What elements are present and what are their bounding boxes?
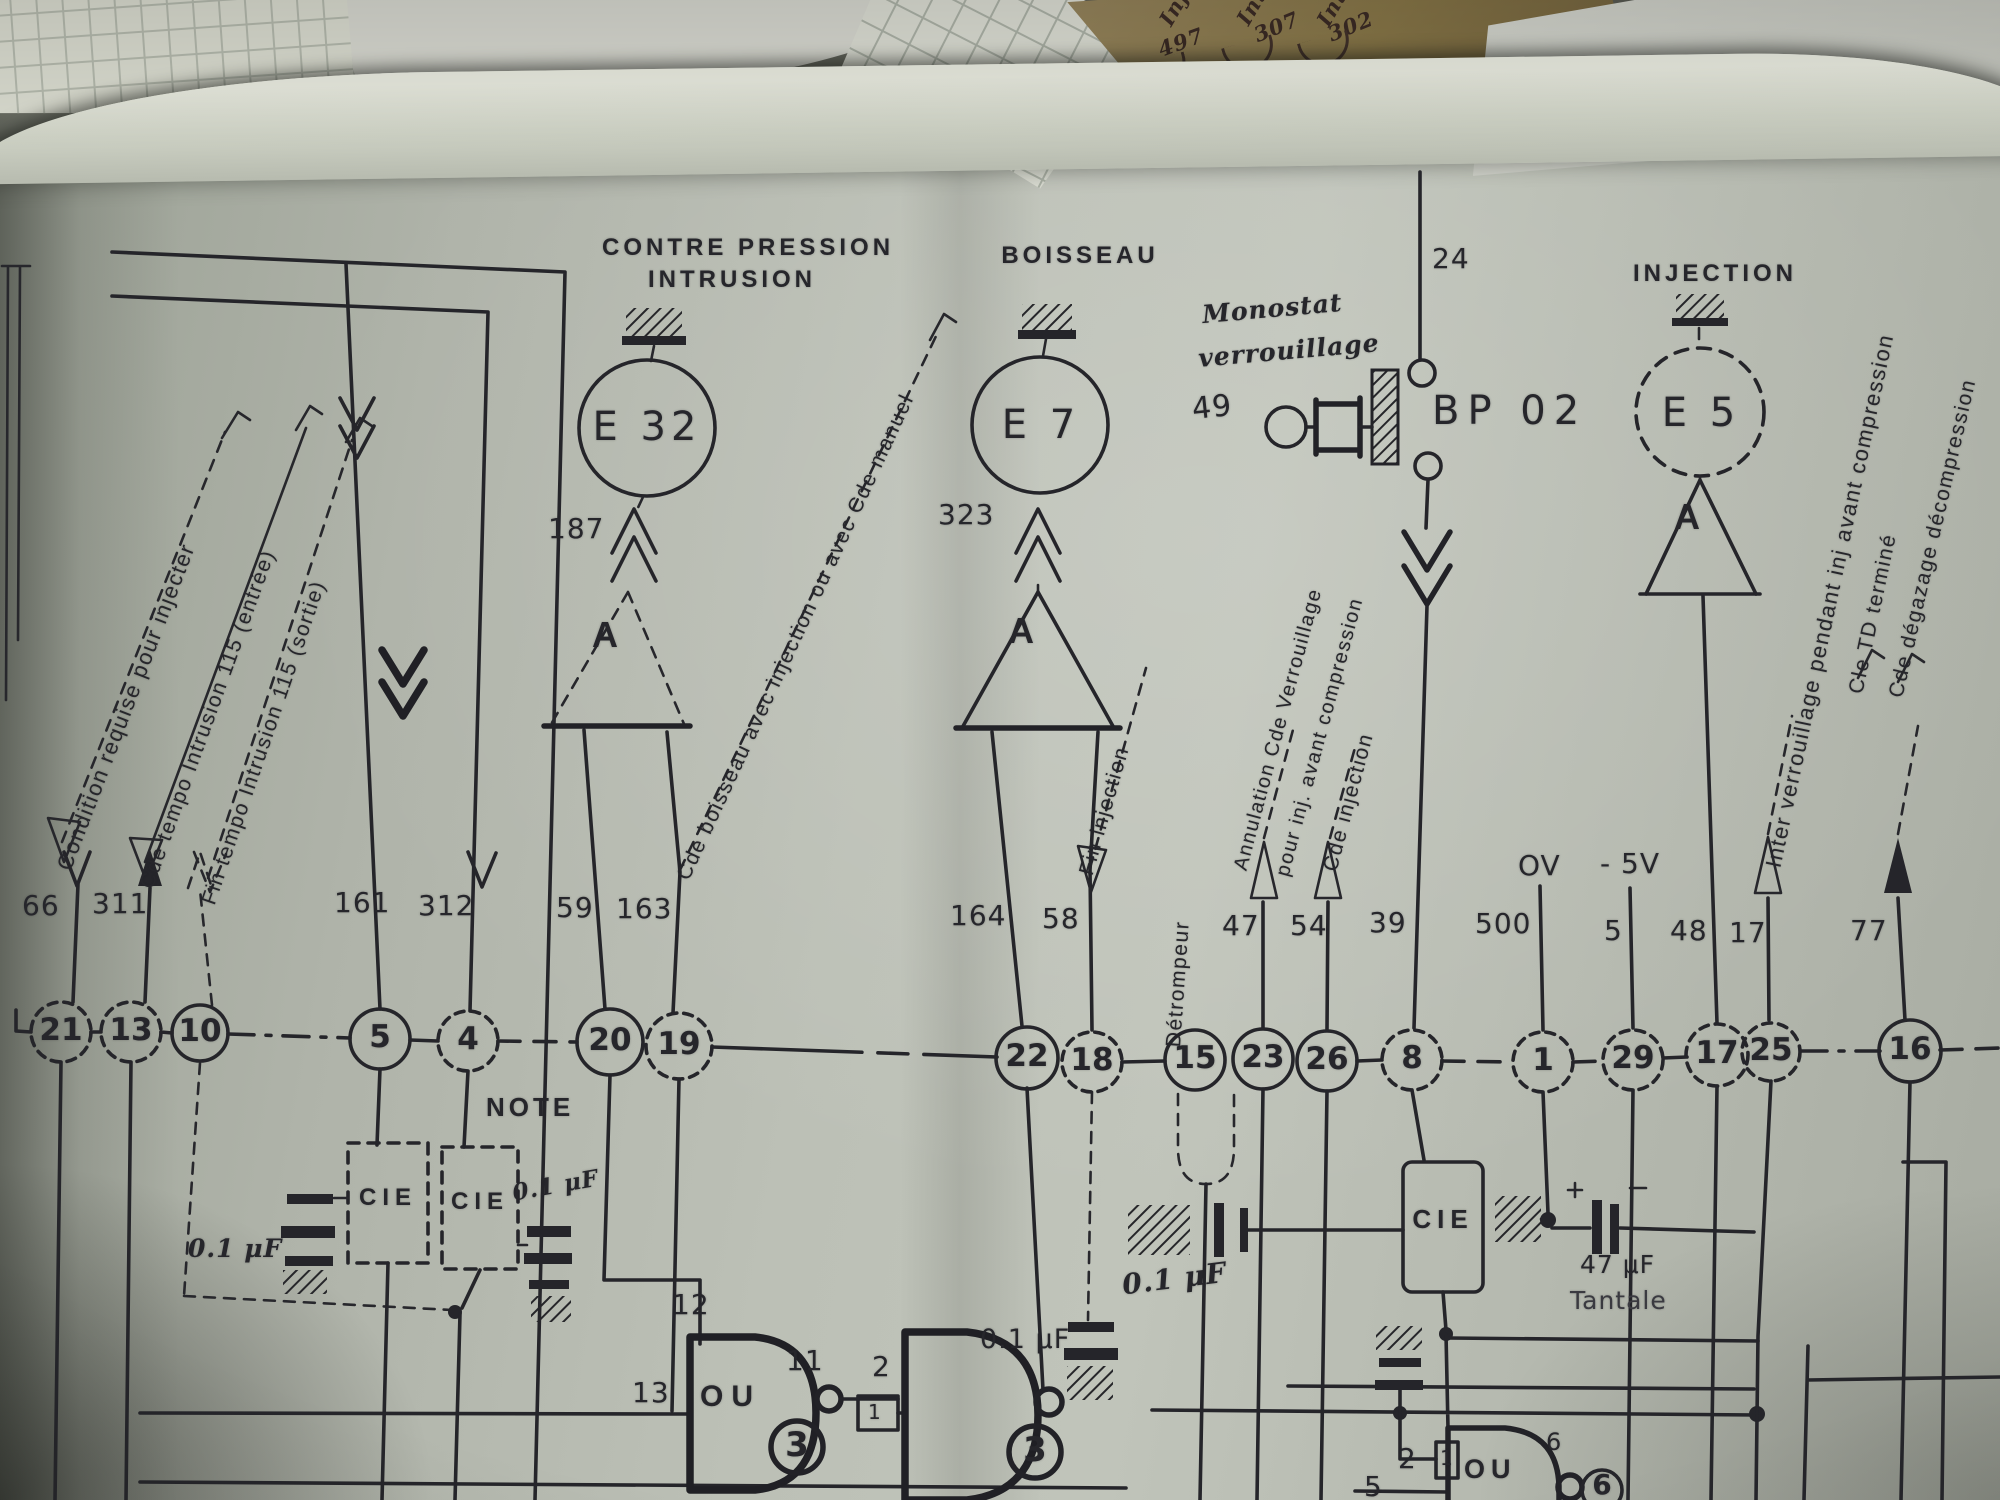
cap-47uf: 47 μF [1580, 1250, 1655, 1279]
schematic-linework [0, 0, 2000, 1500]
label-note: NOTE [486, 1092, 574, 1123]
title-boisseau: BOISSEAU [1000, 242, 1160, 270]
terminal-5: 5 [348, 1019, 412, 1055]
gate3-pin-2: 2 [1398, 1442, 1417, 1475]
wire-66: 66 [22, 889, 60, 922]
wire-58: 58 [1042, 902, 1080, 935]
cap-0p1-bottom: 0.1 μF [980, 1324, 1070, 1355]
photo-of-schematic: Inje 497 Inter 307 Inter 302 [0, 0, 2000, 1500]
terminal-10: 10 [168, 1013, 232, 1049]
gate1-pin-13: 13 [632, 1376, 670, 1409]
wire-311: 311 [92, 887, 148, 920]
terminal-1: 1 [1511, 1042, 1575, 1078]
gate1-label: OU [700, 1380, 761, 1414]
label-0v: OV [1518, 849, 1561, 882]
gate3-tag: 6 [1572, 1468, 1632, 1500]
cap-0p1-left: 0.1 μF [188, 1234, 282, 1263]
amp-a-e5: A [1662, 496, 1712, 538]
terminal-21: 21 [29, 1012, 93, 1048]
wire-163: 163 [616, 892, 672, 925]
terminal-26: 26 [1295, 1041, 1359, 1077]
label-minus5v: - 5V [1600, 847, 1660, 880]
terminal-23: 23 [1231, 1039, 1295, 1075]
wire-48: 48 [1670, 914, 1708, 947]
gate3-label: OU [1464, 1454, 1517, 1485]
node-e32: E 32 [592, 404, 702, 450]
title-intrusion: INTRUSION [602, 266, 862, 294]
label-bp02: BP 02 [1432, 388, 1587, 434]
terminal-16: 16 [1878, 1031, 1942, 1067]
wire-77: 77 [1850, 914, 1888, 947]
terminal-29: 29 [1601, 1040, 1665, 1076]
cie-box-2: CIE [446, 1188, 514, 1216]
amp-a-e7: A [996, 610, 1046, 652]
gate2-pin-1: 1 [868, 1400, 881, 1424]
cie-box-1: CIE [352, 1184, 424, 1212]
wire-312: 312 [418, 889, 474, 922]
right-annotation-arrows [1251, 650, 1924, 1030]
gate2-tag: 3 [1005, 1430, 1065, 1470]
wire-161: 161 [334, 886, 390, 919]
wire-323: 323 [938, 498, 994, 531]
gate1-pin-12: 12 [672, 1288, 710, 1321]
wire-47: 47 [1222, 909, 1260, 942]
terminal-18: 18 [1060, 1042, 1124, 1078]
cap-47uf-type: Tantale [1570, 1286, 1667, 1315]
wire-59: 59 [556, 891, 594, 924]
terminal-8: 8 [1380, 1040, 1444, 1076]
terminal-13: 13 [99, 1012, 163, 1048]
gate2-pin-2: 2 [872, 1350, 891, 1383]
gate1-tag: 3 [767, 1425, 827, 1465]
terminal-19: 19 [647, 1026, 711, 1062]
wire-5: 5 [1604, 914, 1623, 947]
terminal-22: 22 [995, 1038, 1059, 1074]
frame-lines [2, 252, 565, 1500]
wire-49: 49 [1190, 388, 1234, 427]
terminal-4: 4 [436, 1021, 500, 1057]
wire-164: 164 [950, 899, 1006, 932]
wire-17: 17 [1729, 916, 1767, 949]
title-contre-pression: CONTRE PRESSION [602, 234, 862, 262]
gate3-pin-1: 1 [1440, 1446, 1453, 1470]
gate3-pin-5: 5 [1364, 1470, 1383, 1500]
wire-39: 39 [1369, 906, 1407, 939]
wire-187: 187 [548, 512, 604, 545]
gate3-pin-6: 6 [1546, 1428, 1562, 1456]
gate1-pin-11: 11 [786, 1344, 824, 1377]
wire-54: 54 [1290, 909, 1328, 942]
terminal-25: 25 [1739, 1032, 1803, 1068]
cie-box-3: CIE [1408, 1204, 1478, 1235]
node-e5: E 5 [1646, 390, 1756, 436]
amp-a-e32: A [580, 614, 630, 656]
wire-24: 24 [1432, 242, 1470, 275]
node-e7: E 7 [986, 402, 1096, 448]
title-injection: INJECTION [1630, 260, 1800, 288]
wire-500: 500 [1475, 907, 1531, 940]
terminal-20: 20 [578, 1022, 642, 1058]
